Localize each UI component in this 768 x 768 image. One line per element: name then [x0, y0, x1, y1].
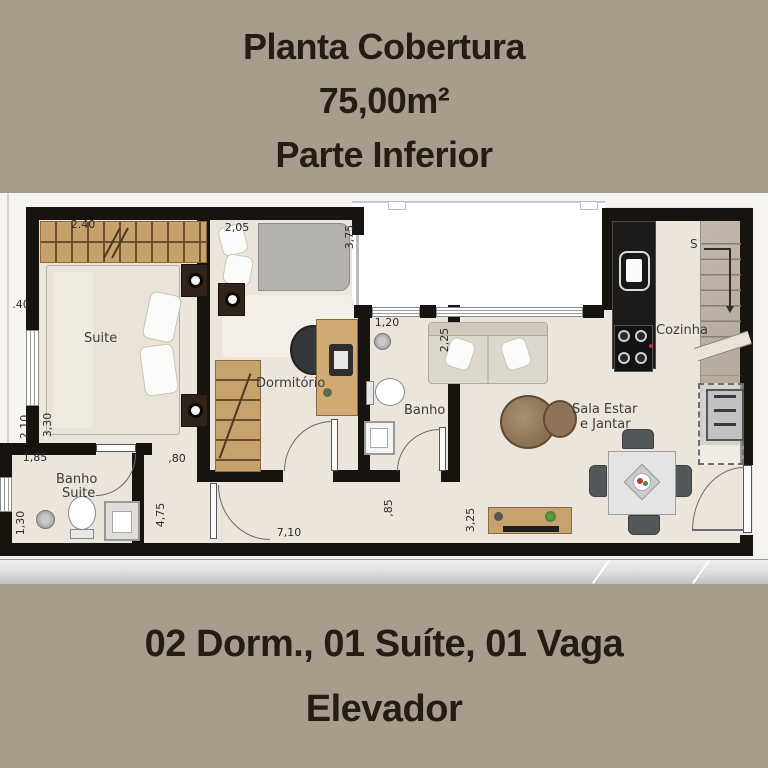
entrance-door-leaf — [743, 465, 752, 533]
room-label-suite: Suite — [84, 331, 117, 346]
dim-suite-depth-a: 2,10 — [19, 412, 31, 442]
laptop-screen — [334, 351, 348, 369]
wall — [352, 305, 372, 318]
shower-drain-icon — [36, 510, 55, 529]
desk — [316, 319, 358, 416]
dim-hall-width: ,80 — [162, 453, 192, 465]
room-label-dormitorio: Dormitório — [256, 376, 325, 391]
toilet-tank — [70, 529, 94, 539]
dim-left-setback: .40 — [6, 299, 36, 311]
dining-table — [608, 451, 676, 515]
toilet — [375, 378, 405, 406]
lamp-icon — [225, 292, 240, 307]
wall — [441, 470, 460, 482]
window — [0, 477, 12, 512]
dim-suite-wardrobe: 2.40 — [68, 219, 98, 231]
window — [436, 307, 583, 317]
decor-icon — [494, 512, 503, 521]
burner-icon — [635, 352, 647, 364]
void-tick — [580, 201, 598, 210]
pillow — [499, 336, 533, 373]
door-chord-line — [692, 529, 744, 531]
shower-drain-icon — [374, 333, 391, 350]
cabinet-detail — [714, 395, 736, 437]
sink-basin — [626, 259, 642, 282]
nightstand — [181, 394, 208, 427]
dim-banho-suite-width: 1,85 — [20, 452, 50, 464]
dim-wall-segment: ,85 — [383, 493, 395, 523]
nightstand — [181, 264, 208, 297]
dim-tv-wall: 3,25 — [465, 505, 477, 535]
pillow — [139, 343, 180, 397]
wardrobe-rail — [41, 241, 206, 243]
stove — [614, 325, 653, 372]
wall — [420, 305, 436, 318]
dorm-wardrobe — [215, 360, 261, 472]
floor-plan: Suite Dormitório Banho Banho Suite Cozin… — [0, 193, 768, 559]
wall — [358, 470, 400, 482]
dining-chair — [674, 465, 692, 497]
void-edge-line — [356, 235, 359, 305]
nightstand — [218, 283, 245, 316]
page-title: Planta Cobertura — [0, 22, 768, 72]
subtitle: Parte Inferior — [0, 130, 768, 180]
room-label-cozinha: Cozinha — [656, 323, 708, 338]
dim-banho-suite-depth: 1,30 — [15, 508, 27, 538]
kitchen-sink — [619, 251, 650, 291]
bed-blanket — [258, 223, 350, 291]
stair-direction-line — [729, 248, 731, 306]
toilet — [68, 496, 96, 530]
room-label-banho-suite-1: Banho — [56, 472, 97, 487]
dim-living-width: 7,10 — [274, 527, 304, 539]
burner-icon — [618, 330, 630, 342]
door-leaf — [210, 483, 217, 539]
laptop-icon — [329, 344, 353, 376]
bed-sheet — [53, 272, 93, 428]
wall — [0, 543, 753, 556]
footer-features: 02 Dorm., 01 Suíte, 01 Vaga — [0, 620, 768, 668]
marble-vein — [692, 560, 710, 584]
wardrobe-diagonal — [111, 228, 129, 259]
sink-basin — [370, 428, 388, 448]
wardrobe-diagonal — [219, 373, 252, 458]
bathroom-sink — [364, 421, 395, 455]
wall — [583, 305, 604, 318]
marble-vein — [592, 560, 610, 584]
fruit-icon — [643, 481, 648, 486]
burner-icon — [635, 330, 647, 342]
stair-direction-line — [704, 248, 731, 250]
dim-suite-depth-b: 3,30 — [42, 410, 54, 440]
plant-icon — [545, 511, 556, 522]
plan-base-strip — [0, 559, 768, 584]
dim-banho-width: 1,20 — [372, 317, 402, 329]
lamp-icon — [188, 403, 203, 418]
lamp-icon — [188, 273, 203, 288]
wall — [26, 207, 39, 330]
stairs-marker: S — [690, 237, 698, 251]
footer-elevator: Elevador — [0, 685, 768, 733]
bathroom-sink — [104, 501, 140, 541]
suite-wardrobe — [40, 221, 207, 263]
door-leaf — [96, 444, 136, 452]
flyer: { "header": { "title": "Planta Cobertura… — [0, 0, 768, 768]
tv-console — [488, 507, 572, 534]
room-label-sala-2: e Jantar — [580, 417, 631, 432]
window — [26, 330, 39, 406]
dim-banho-depth: 2,25 — [439, 325, 451, 355]
dining-chair — [589, 465, 607, 497]
dim-dorm-width: 2,05 — [222, 222, 252, 234]
void-tick — [388, 201, 406, 210]
dim-hall-depth: 4,75 — [155, 500, 167, 530]
room-label-banho: Banho — [404, 403, 445, 418]
stair-arrow-icon — [726, 306, 734, 313]
tv-icon — [503, 526, 559, 532]
void-area — [352, 201, 605, 307]
dining-chair — [622, 429, 654, 449]
room-label-banho-suite-2: Suite — [62, 486, 95, 501]
centerpiece — [633, 473, 651, 491]
burner-icon — [618, 352, 630, 364]
toilet-tank — [366, 381, 374, 405]
door-leaf — [439, 427, 446, 471]
sofa-seam — [487, 336, 489, 383]
cabinet — [706, 389, 744, 441]
sink-basin — [112, 511, 132, 533]
dim-dorm-depth: 3,75 — [344, 222, 356, 252]
stove-knob — [649, 344, 653, 348]
room-label-sala-1: Sala Estar — [572, 402, 637, 417]
area-label: 75,00m² — [0, 76, 768, 126]
wall — [0, 512, 12, 543]
wall — [604, 208, 753, 221]
door-leaf — [331, 419, 338, 471]
dining-chair — [628, 515, 660, 535]
